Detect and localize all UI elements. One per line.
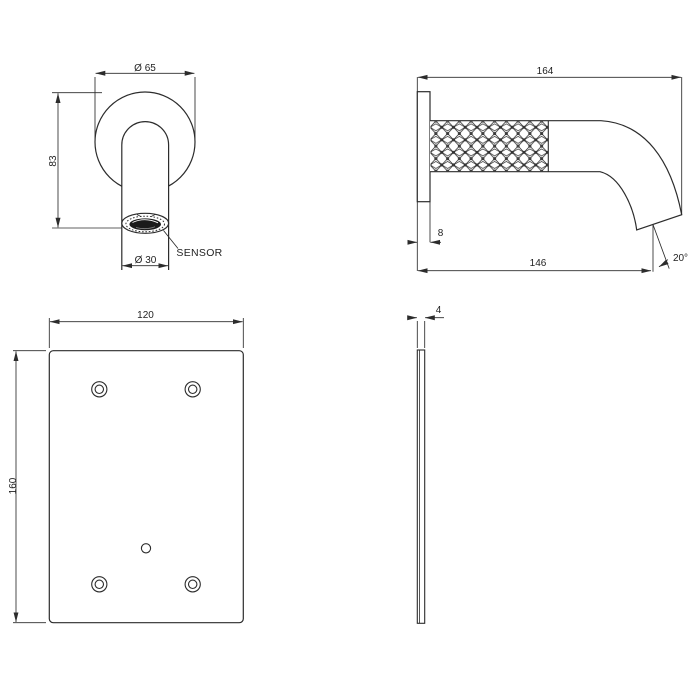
sensor-aerator-tip [122, 213, 169, 233]
backplate-side-outline [417, 350, 424, 623]
dim-flange-diameter-label: Ø 65 [134, 64, 156, 74]
angle-ref-slanted [653, 225, 669, 269]
drawing-linework [0, 0, 700, 700]
plate-side-dimension-lines [408, 318, 444, 348]
dim-plate-thickness-label: 8 [438, 229, 444, 239]
backplate-side-view [408, 318, 444, 624]
spout-front-view [52, 73, 195, 270]
sensor-label: SENSOR [176, 247, 222, 258]
angle-arc-arrow [659, 260, 668, 267]
backplate-front-view [13, 318, 243, 623]
dim-projection-label: 146 [530, 259, 547, 269]
dim-outlet-angle-label: 20° [673, 254, 688, 264]
dim-outlet-diameter-label: Ø 30 [135, 256, 157, 266]
dim-plate-height-label: 160 [9, 478, 19, 495]
wall-plate-side [417, 92, 430, 202]
dim-plate-side-thickness-label: 4 [436, 306, 442, 316]
dim-thickness-ext-lines [417, 321, 424, 348]
dim-total-length-label: 164 [537, 67, 554, 77]
knurl-texture-band [431, 121, 549, 171]
dim-plate-width-label: 120 [137, 311, 154, 321]
technical-drawing: Ø 65 83 Ø 30 SENSOR 164 8 146 20° 120 16… [0, 0, 700, 700]
dim-height-label: 83 [49, 155, 59, 166]
dim-width-ext-lines [49, 318, 243, 348]
spout-side-view [408, 77, 682, 272]
backplate-outline [49, 351, 243, 623]
